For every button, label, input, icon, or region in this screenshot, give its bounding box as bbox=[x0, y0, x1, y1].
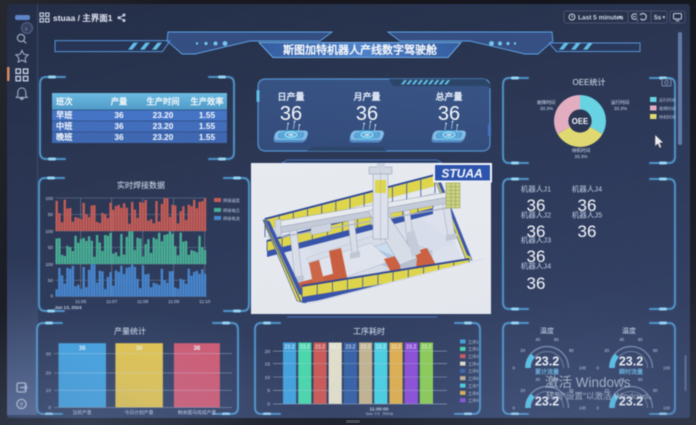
svg-text:36: 36 bbox=[79, 346, 86, 352]
svg-text:60: 60 bbox=[554, 337, 559, 342]
svg-text:1.55: 1.55 bbox=[199, 132, 216, 142]
svg-text:23.2: 23.2 bbox=[421, 345, 431, 351]
svg-text:23.2: 23.2 bbox=[300, 345, 310, 351]
svg-text:▾: ▾ bbox=[663, 15, 666, 21]
svg-text:温度: 温度 bbox=[540, 326, 554, 335]
svg-text:早班: 早班 bbox=[56, 110, 73, 120]
svg-text:11:07: 11:07 bbox=[106, 299, 118, 304]
svg-text:36: 36 bbox=[356, 103, 378, 125]
svg-text:待机时间: 待机时间 bbox=[572, 147, 591, 154]
svg-text:20: 20 bbox=[46, 371, 52, 377]
svg-text:stuaa / 主界面1: stuaa / 主界面1 bbox=[53, 13, 113, 23]
svg-text:11:09: 11:09 bbox=[168, 299, 180, 304]
svg-text:当前产量: 当前产量 bbox=[72, 409, 91, 415]
svg-text:10: 10 bbox=[265, 375, 271, 381]
svg-text:机器人J3: 机器人J3 bbox=[521, 235, 551, 245]
svg-text:0: 0 bbox=[513, 366, 516, 371]
svg-text:焊接电流: 焊接电流 bbox=[223, 215, 241, 222]
svg-text:23.2: 23.2 bbox=[391, 345, 401, 351]
svg-text:工序7: 工序7 bbox=[468, 382, 479, 389]
svg-text:工序5: 工序5 bbox=[468, 368, 479, 375]
svg-text:100: 100 bbox=[663, 366, 671, 371]
svg-text:0: 0 bbox=[597, 406, 600, 411]
svg-text:剩余图马完成产量: 剩余图马完成产量 bbox=[178, 409, 217, 415]
svg-text:0: 0 bbox=[513, 406, 516, 411]
svg-text:23.2: 23.2 bbox=[285, 345, 295, 351]
svg-text:23.20: 23.20 bbox=[153, 110, 174, 120]
svg-text:机器人J5: 机器人J5 bbox=[572, 210, 602, 220]
svg-text:11:08: 11:08 bbox=[137, 299, 149, 304]
svg-text:36: 36 bbox=[527, 274, 546, 293]
svg-text:1.55: 1.55 bbox=[199, 121, 216, 131]
svg-text:100: 100 bbox=[579, 366, 587, 371]
svg-text:23.2: 23.2 bbox=[406, 345, 416, 351]
svg-text:故障时间: 故障时间 bbox=[659, 105, 676, 112]
svg-text:11:10: 11:10 bbox=[199, 299, 211, 304]
svg-text:33.3%: 33.3% bbox=[540, 106, 553, 111]
svg-text:0: 0 bbox=[50, 294, 53, 299]
svg-text:STUAA: STUAA bbox=[441, 167, 482, 181]
svg-text:工序耗时: 工序耗时 bbox=[353, 326, 385, 336]
svg-text:机器人J4: 机器人J4 bbox=[572, 184, 602, 194]
svg-text:23.2: 23.2 bbox=[376, 345, 386, 351]
svg-text:20: 20 bbox=[265, 349, 271, 355]
svg-text:产量统计: 产量统计 bbox=[114, 326, 146, 336]
svg-text:运行时间: 运行时间 bbox=[611, 99, 630, 106]
svg-text:5: 5 bbox=[267, 388, 270, 394]
svg-text:班次: 班次 bbox=[56, 97, 73, 107]
svg-text:转到"设置"以激活 Windows。: 转到"设置"以激活 Windows。 bbox=[546, 391, 657, 401]
svg-text:▾: ▾ bbox=[619, 15, 622, 21]
svg-text:工序2: 工序2 bbox=[468, 346, 479, 353]
svg-text:工序3: 工序3 bbox=[468, 353, 479, 360]
svg-text:斯图加特机器人产线数字驾驶舱: 斯图加特机器人产线数字驾驶舱 bbox=[283, 43, 438, 57]
svg-text:工序4: 工序4 bbox=[468, 360, 479, 367]
svg-text:15: 15 bbox=[265, 361, 271, 367]
svg-text:23.2: 23.2 bbox=[345, 345, 355, 351]
svg-text:11:06: 11:06 bbox=[75, 299, 87, 304]
svg-text:激活 Windows: 激活 Windows bbox=[545, 375, 631, 390]
svg-text:23.2: 23.2 bbox=[315, 345, 325, 351]
svg-text:运行时间: 运行时间 bbox=[659, 97, 676, 104]
svg-text:故障时间: 故障时间 bbox=[537, 99, 556, 106]
svg-text:50: 50 bbox=[48, 212, 54, 217]
svg-text:Last 5 minutes: Last 5 minutes bbox=[578, 14, 624, 21]
svg-text:36: 36 bbox=[280, 103, 302, 125]
svg-text:23.2: 23.2 bbox=[361, 345, 371, 351]
svg-text:工序1: 工序1 bbox=[468, 338, 479, 345]
svg-text:40: 40 bbox=[535, 377, 540, 382]
svg-text:36: 36 bbox=[114, 132, 124, 142]
svg-text:100: 100 bbox=[45, 229, 53, 234]
svg-text:36: 36 bbox=[194, 346, 201, 352]
svg-text:40: 40 bbox=[619, 337, 624, 342]
svg-text:20: 20 bbox=[604, 348, 609, 353]
svg-text:60: 60 bbox=[638, 377, 643, 382]
svg-text:生产时间: 生产时间 bbox=[146, 97, 179, 107]
svg-text:40: 40 bbox=[535, 337, 540, 342]
svg-text:实时焊接数据: 实时焊接数据 bbox=[117, 180, 165, 190]
svg-text:温度: 温度 bbox=[622, 326, 636, 335]
svg-text:工序9: 工序9 bbox=[468, 397, 479, 404]
svg-text:中班: 中班 bbox=[56, 121, 73, 131]
svg-text:80: 80 bbox=[569, 348, 574, 353]
svg-text:?: ? bbox=[19, 402, 23, 409]
svg-text:23.20: 23.20 bbox=[153, 121, 174, 131]
svg-text:80: 80 bbox=[653, 348, 658, 353]
svg-text:工序8: 工序8 bbox=[468, 390, 479, 397]
svg-text:工序6: 工序6 bbox=[468, 375, 479, 382]
svg-text:今日计划产量: 今日计划产量 bbox=[125, 409, 154, 415]
svg-text:月产量: 月产量 bbox=[352, 91, 380, 102]
svg-text:5s: 5s bbox=[654, 14, 662, 21]
svg-text:机器人J4: 机器人J4 bbox=[521, 261, 551, 271]
svg-text:待机时间: 待机时间 bbox=[659, 114, 676, 121]
svg-text:1.55: 1.55 bbox=[199, 110, 216, 120]
svg-text:0: 0 bbox=[597, 366, 600, 371]
svg-text:36: 36 bbox=[438, 103, 460, 125]
svg-text:33.3%: 33.3% bbox=[574, 154, 587, 159]
svg-text:20: 20 bbox=[520, 348, 525, 353]
svg-text:30: 30 bbox=[46, 351, 52, 357]
svg-text:36: 36 bbox=[114, 121, 124, 131]
svg-text:OEE统计: OEE统计 bbox=[573, 77, 606, 87]
svg-text:总产量: 总产量 bbox=[435, 91, 462, 102]
svg-text:OEE: OEE bbox=[572, 117, 588, 126]
svg-text:晚班: 晚班 bbox=[56, 132, 73, 142]
svg-text:0: 0 bbox=[267, 402, 270, 408]
svg-text:50: 50 bbox=[48, 278, 54, 283]
svg-text:60: 60 bbox=[638, 337, 643, 342]
svg-text:日产量: 日产量 bbox=[277, 91, 304, 102]
svg-text:焊接电压: 焊接电压 bbox=[223, 207, 240, 214]
svg-text:100: 100 bbox=[579, 406, 587, 411]
svg-text:23.20: 23.20 bbox=[153, 132, 174, 142]
svg-text:33.3%: 33.3% bbox=[614, 106, 627, 111]
svg-text:50: 50 bbox=[48, 245, 54, 250]
svg-text:23.2: 23.2 bbox=[535, 355, 559, 369]
svg-text:100: 100 bbox=[663, 406, 671, 411]
svg-text:20: 20 bbox=[520, 388, 525, 393]
svg-text:100: 100 bbox=[45, 196, 53, 201]
svg-text:Jan 13, 2024: Jan 13, 2024 bbox=[54, 305, 82, 310]
svg-text:23.2: 23.2 bbox=[330, 345, 340, 351]
svg-text:生产效率: 生产效率 bbox=[190, 97, 224, 107]
svg-text:产量: 产量 bbox=[111, 97, 128, 107]
svg-text:36: 36 bbox=[136, 346, 143, 352]
svg-text:机器人J2: 机器人J2 bbox=[521, 210, 551, 220]
svg-text:23.2: 23.2 bbox=[619, 355, 643, 369]
svg-text:机器人J1: 机器人J1 bbox=[521, 184, 551, 194]
svg-text:Jan 13, 2024: Jan 13, 2024 bbox=[365, 412, 393, 416]
svg-text:焊接速度: 焊接速度 bbox=[223, 197, 241, 204]
svg-text:36: 36 bbox=[578, 222, 597, 241]
svg-text:100: 100 bbox=[45, 262, 53, 267]
svg-text:10: 10 bbox=[46, 388, 52, 394]
svg-text:36: 36 bbox=[114, 110, 124, 120]
svg-text:0: 0 bbox=[48, 405, 51, 411]
